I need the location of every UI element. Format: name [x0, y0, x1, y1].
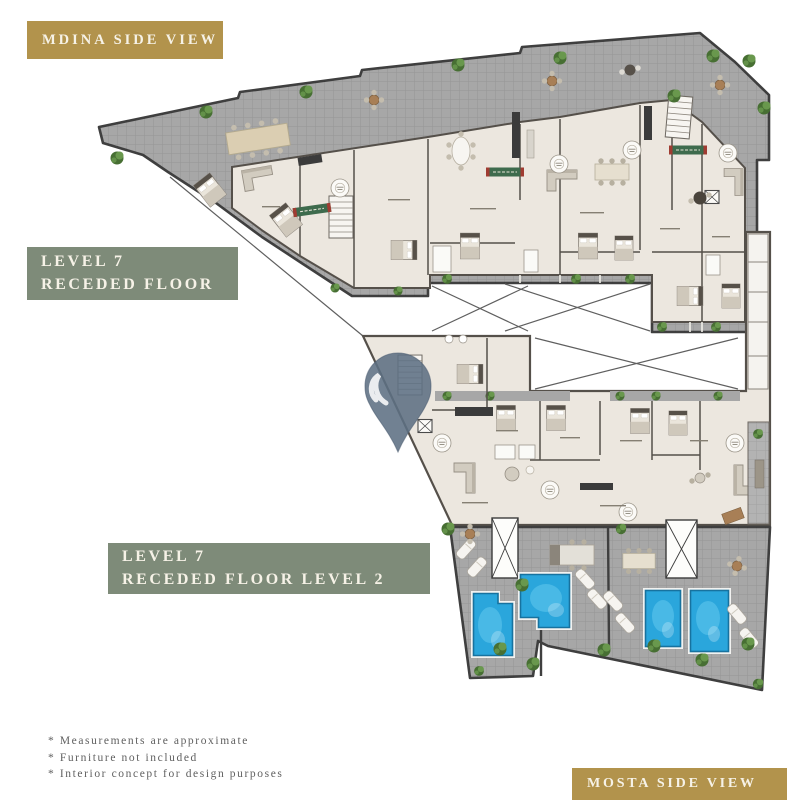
mosta-side-view-label: MOSTA SIDE VIEW — [587, 776, 787, 792]
skylight — [666, 520, 697, 578]
disclaimer-notes: * Measurements are approximate * Furnitu… — [48, 733, 283, 783]
disclaimer-measurements: * Measurements are approximate — [48, 733, 283, 750]
pool-1 — [471, 591, 515, 658]
disclaimer-furniture: * Furniture not included — [48, 750, 283, 767]
floorplan-drawing — [0, 0, 800, 800]
pool-4 — [688, 588, 731, 654]
mdina-side-view-label: MDINA SIDE VIEW — [42, 32, 223, 49]
level7-line1: LEVEL 7 — [41, 251, 238, 273]
disclaimer-interior: * Interior concept for design purposes — [48, 766, 283, 783]
level7-line2: RECEDED FLOOR — [41, 274, 238, 296]
skylight — [492, 518, 518, 578]
mdina-side-view-badge: MDINA SIDE VIEW — [27, 21, 223, 59]
level7-receded-floor-badge: LEVEL 7 RECEDED FLOOR — [27, 247, 238, 300]
pool-3 — [643, 588, 683, 649]
level7-receded-floor-level2-badge: LEVEL 7 RECEDED FLOOR LEVEL 2 — [108, 543, 430, 594]
mosta-side-view-badge: MOSTA SIDE VIEW — [572, 768, 787, 800]
level7b-line2: RECEDED FLOOR LEVEL 2 — [122, 569, 430, 591]
level7b-line1: LEVEL 7 — [122, 546, 430, 568]
